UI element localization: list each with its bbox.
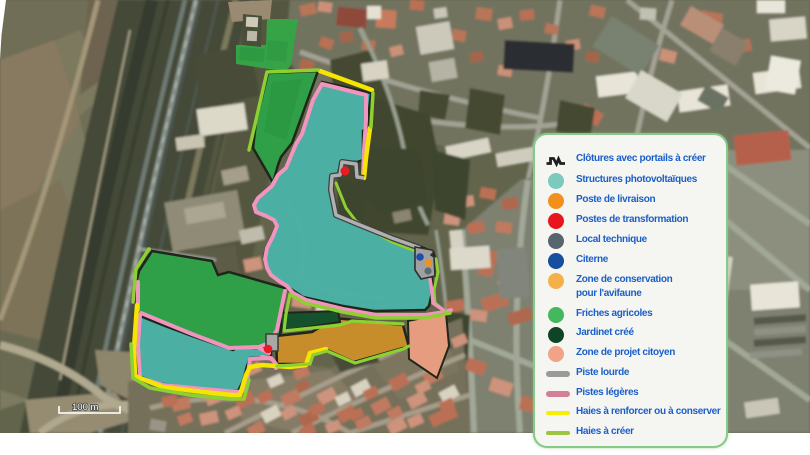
svg-text:100 m: 100 m	[72, 402, 98, 413]
